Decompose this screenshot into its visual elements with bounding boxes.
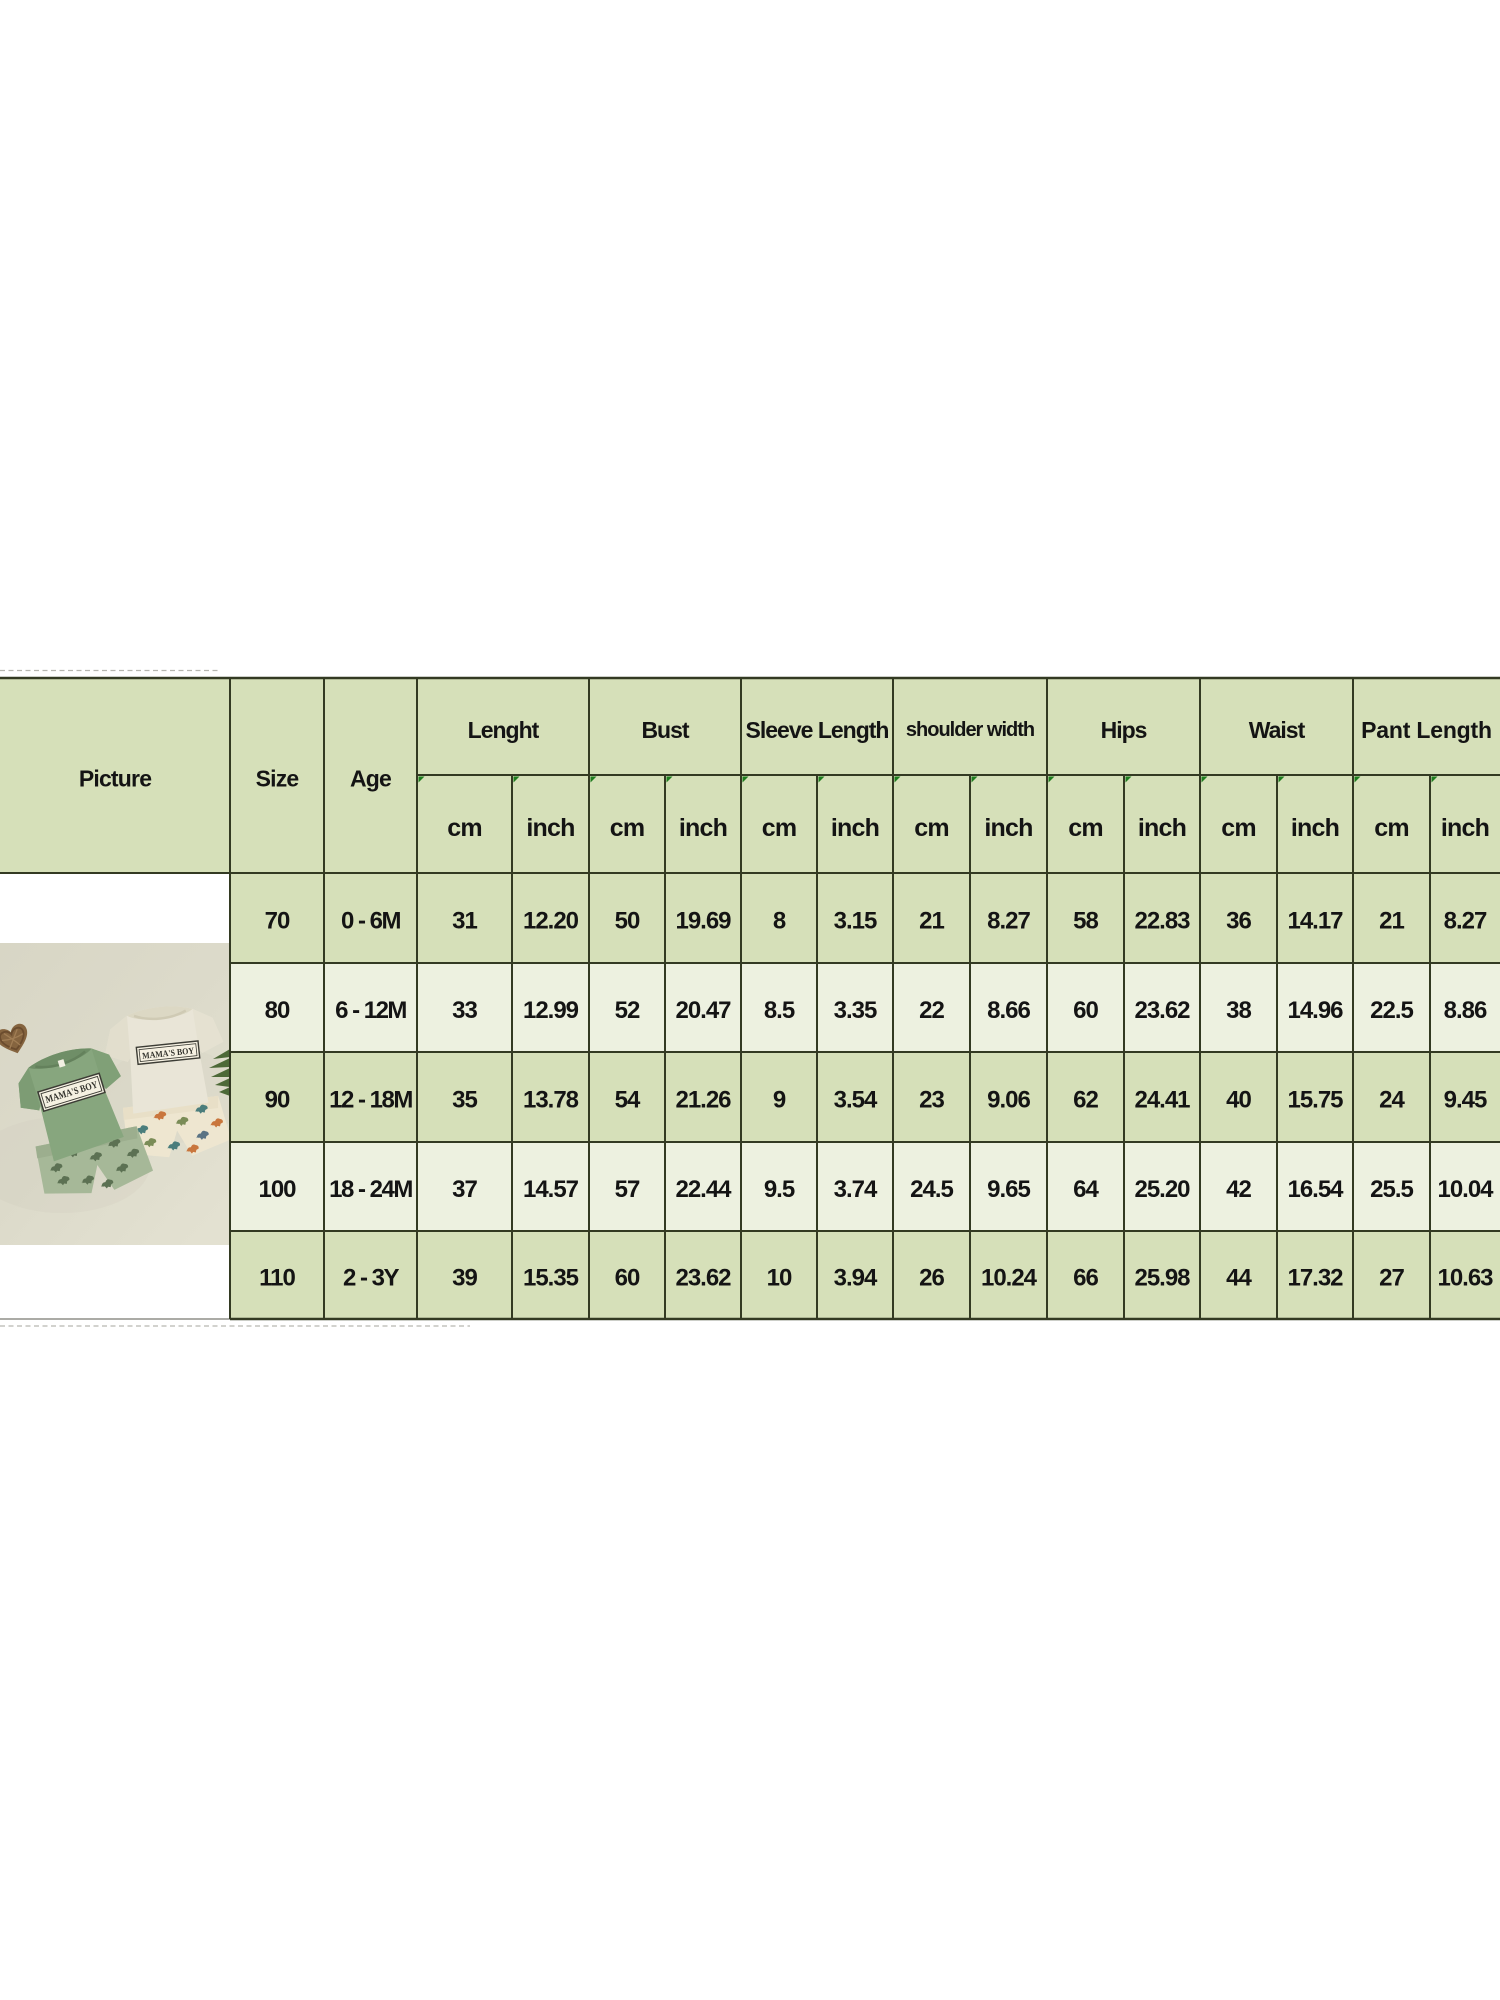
svg-text:14.96: 14.96 xyxy=(1287,997,1343,1024)
svg-text:inch: inch xyxy=(526,814,574,842)
svg-text:9: 9 xyxy=(773,1087,786,1114)
svg-text:Age: Age xyxy=(350,766,391,792)
svg-text:27: 27 xyxy=(1379,1265,1404,1292)
svg-text:10.04: 10.04 xyxy=(1437,1176,1494,1203)
svg-text:inch: inch xyxy=(1441,814,1489,842)
svg-text:42: 42 xyxy=(1226,1176,1251,1203)
svg-text:57: 57 xyxy=(615,1176,640,1203)
svg-text:cm: cm xyxy=(762,814,797,842)
svg-text:20.47: 20.47 xyxy=(675,997,731,1024)
svg-text:3.15: 3.15 xyxy=(834,908,877,935)
svg-text:8.86: 8.86 xyxy=(1444,997,1487,1024)
svg-text:2 - 3Y: 2 - 3Y xyxy=(343,1265,400,1292)
svg-text:9.45: 9.45 xyxy=(1444,1087,1487,1114)
svg-text:Sleeve Length: Sleeve Length xyxy=(746,717,889,743)
svg-text:70: 70 xyxy=(265,908,290,935)
svg-text:inch: inch xyxy=(831,814,879,842)
svg-text:inch: inch xyxy=(984,814,1032,842)
svg-text:90: 90 xyxy=(265,1087,290,1114)
svg-text:21: 21 xyxy=(1379,908,1404,935)
svg-text:60: 60 xyxy=(615,1265,640,1292)
svg-text:17.32: 17.32 xyxy=(1287,1265,1343,1292)
svg-text:12.20: 12.20 xyxy=(523,908,579,935)
svg-text:cm: cm xyxy=(610,814,645,842)
svg-text:9.06: 9.06 xyxy=(987,1087,1030,1114)
svg-text:24.5: 24.5 xyxy=(910,1176,953,1203)
svg-text:18 - 24M: 18 - 24M xyxy=(329,1176,412,1203)
svg-text:3.74: 3.74 xyxy=(834,1176,878,1203)
svg-text:31: 31 xyxy=(452,908,477,935)
svg-text:19.69: 19.69 xyxy=(675,908,731,935)
svg-text:24.41: 24.41 xyxy=(1134,1087,1190,1114)
svg-text:38: 38 xyxy=(1226,997,1251,1024)
svg-text:50: 50 xyxy=(615,908,640,935)
svg-text:16.54: 16.54 xyxy=(1287,1176,1344,1203)
svg-text:80: 80 xyxy=(265,997,290,1024)
svg-text:66: 66 xyxy=(1073,1265,1098,1292)
svg-text:21: 21 xyxy=(919,908,944,935)
svg-text:12.99: 12.99 xyxy=(523,997,579,1024)
svg-text:22.44: 22.44 xyxy=(675,1176,732,1203)
svg-text:35: 35 xyxy=(452,1087,477,1114)
svg-text:25.98: 25.98 xyxy=(1134,1265,1190,1292)
svg-text:54: 54 xyxy=(615,1087,641,1114)
svg-text:inch: inch xyxy=(1291,814,1339,842)
svg-text:Waist: Waist xyxy=(1249,717,1306,743)
svg-text:Bust: Bust xyxy=(641,717,689,743)
svg-text:cm: cm xyxy=(914,814,949,842)
svg-text:23.62: 23.62 xyxy=(1134,997,1190,1024)
svg-text:37: 37 xyxy=(452,1176,477,1203)
svg-text:23.62: 23.62 xyxy=(675,1265,731,1292)
svg-text:Hips: Hips xyxy=(1101,717,1147,743)
svg-text:Lenght: Lenght xyxy=(468,717,540,743)
svg-text:25.5: 25.5 xyxy=(1370,1176,1413,1203)
svg-text:23: 23 xyxy=(919,1087,944,1114)
svg-text:15.35: 15.35 xyxy=(523,1265,579,1292)
svg-text:24: 24 xyxy=(1379,1087,1405,1114)
svg-text:10: 10 xyxy=(767,1265,792,1292)
svg-text:12 - 18M: 12 - 18M xyxy=(329,1087,412,1114)
svg-text:40: 40 xyxy=(1226,1087,1251,1114)
svg-text:52: 52 xyxy=(615,997,640,1024)
svg-text:13.78: 13.78 xyxy=(523,1087,579,1114)
svg-text:10.24: 10.24 xyxy=(981,1265,1038,1292)
svg-text:Size: Size xyxy=(256,766,299,792)
svg-text:14.57: 14.57 xyxy=(523,1176,579,1203)
svg-text:22.83: 22.83 xyxy=(1134,908,1190,935)
svg-text:0 - 6M: 0 - 6M xyxy=(341,908,401,935)
svg-text:3.35: 3.35 xyxy=(834,997,877,1024)
svg-text:8: 8 xyxy=(773,908,786,935)
svg-text:3.54: 3.54 xyxy=(834,1087,878,1114)
svg-text:15.75: 15.75 xyxy=(1287,1087,1343,1114)
svg-text:8.5: 8.5 xyxy=(764,997,795,1024)
svg-text:cm: cm xyxy=(447,814,482,842)
svg-text:cm: cm xyxy=(1374,814,1409,842)
svg-text:60: 60 xyxy=(1073,997,1098,1024)
svg-text:inch: inch xyxy=(1138,814,1186,842)
svg-text:9.5: 9.5 xyxy=(764,1176,795,1203)
svg-text:39: 39 xyxy=(452,1265,477,1292)
svg-text:inch: inch xyxy=(679,814,727,842)
svg-text:62: 62 xyxy=(1073,1087,1098,1114)
svg-text:58: 58 xyxy=(1073,908,1098,935)
svg-text:9.65: 9.65 xyxy=(987,1176,1030,1203)
svg-text:3.94: 3.94 xyxy=(834,1265,878,1292)
svg-text:10.63: 10.63 xyxy=(1437,1265,1493,1292)
svg-text:33: 33 xyxy=(452,997,477,1024)
svg-text:110: 110 xyxy=(259,1265,295,1292)
svg-text:22.5: 22.5 xyxy=(1370,997,1413,1024)
svg-text:22: 22 xyxy=(919,997,944,1024)
svg-text:shoulder width: shoulder width xyxy=(906,719,1034,741)
svg-text:14.17: 14.17 xyxy=(1287,908,1343,935)
svg-text:8.27: 8.27 xyxy=(1444,908,1487,935)
svg-text:8.27: 8.27 xyxy=(987,908,1030,935)
svg-text:cm: cm xyxy=(1221,814,1256,842)
svg-text:44: 44 xyxy=(1226,1265,1252,1292)
svg-text:64: 64 xyxy=(1073,1176,1099,1203)
svg-text:26: 26 xyxy=(919,1265,944,1292)
svg-text:36: 36 xyxy=(1226,908,1251,935)
svg-text:21.26: 21.26 xyxy=(675,1087,731,1114)
svg-text:Picture: Picture xyxy=(79,766,151,792)
svg-text:100: 100 xyxy=(258,1176,296,1203)
svg-text:6 - 12M: 6 - 12M xyxy=(335,997,406,1024)
svg-text:8.66: 8.66 xyxy=(987,997,1030,1024)
svg-text:cm: cm xyxy=(1068,814,1103,842)
svg-text:Pant Length: Pant Length xyxy=(1361,717,1492,743)
svg-text:25.20: 25.20 xyxy=(1134,1176,1190,1203)
